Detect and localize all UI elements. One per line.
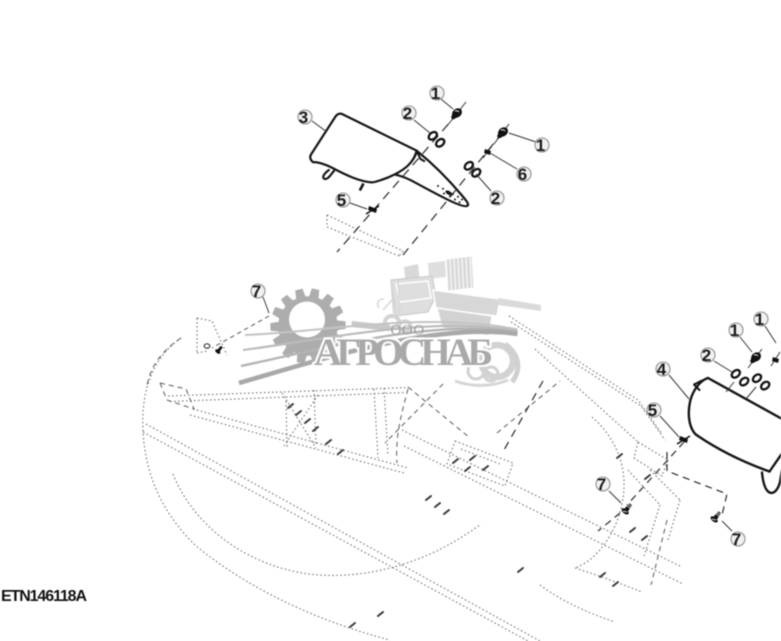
svg-text:1: 1 (431, 84, 440, 103)
svg-text:7: 7 (252, 282, 261, 301)
svg-text:1: 1 (536, 136, 545, 155)
svg-text:2: 2 (702, 346, 711, 365)
svg-text:7: 7 (597, 475, 606, 494)
svg-text:АГРОСНАБ: АГРОСНАБ (314, 331, 493, 374)
svg-text:2: 2 (491, 189, 500, 208)
svg-text:3: 3 (299, 108, 308, 127)
svg-text:4: 4 (657, 360, 667, 379)
svg-text:7: 7 (732, 530, 741, 549)
svg-text:2: 2 (403, 104, 412, 123)
svg-text:5: 5 (648, 401, 657, 420)
svg-text:5: 5 (337, 191, 346, 210)
svg-text:ETN146118A: ETN146118A (1, 588, 87, 605)
svg-text:1: 1 (730, 321, 739, 340)
svg-text:6: 6 (518, 165, 527, 184)
svg-text:1: 1 (755, 310, 764, 329)
